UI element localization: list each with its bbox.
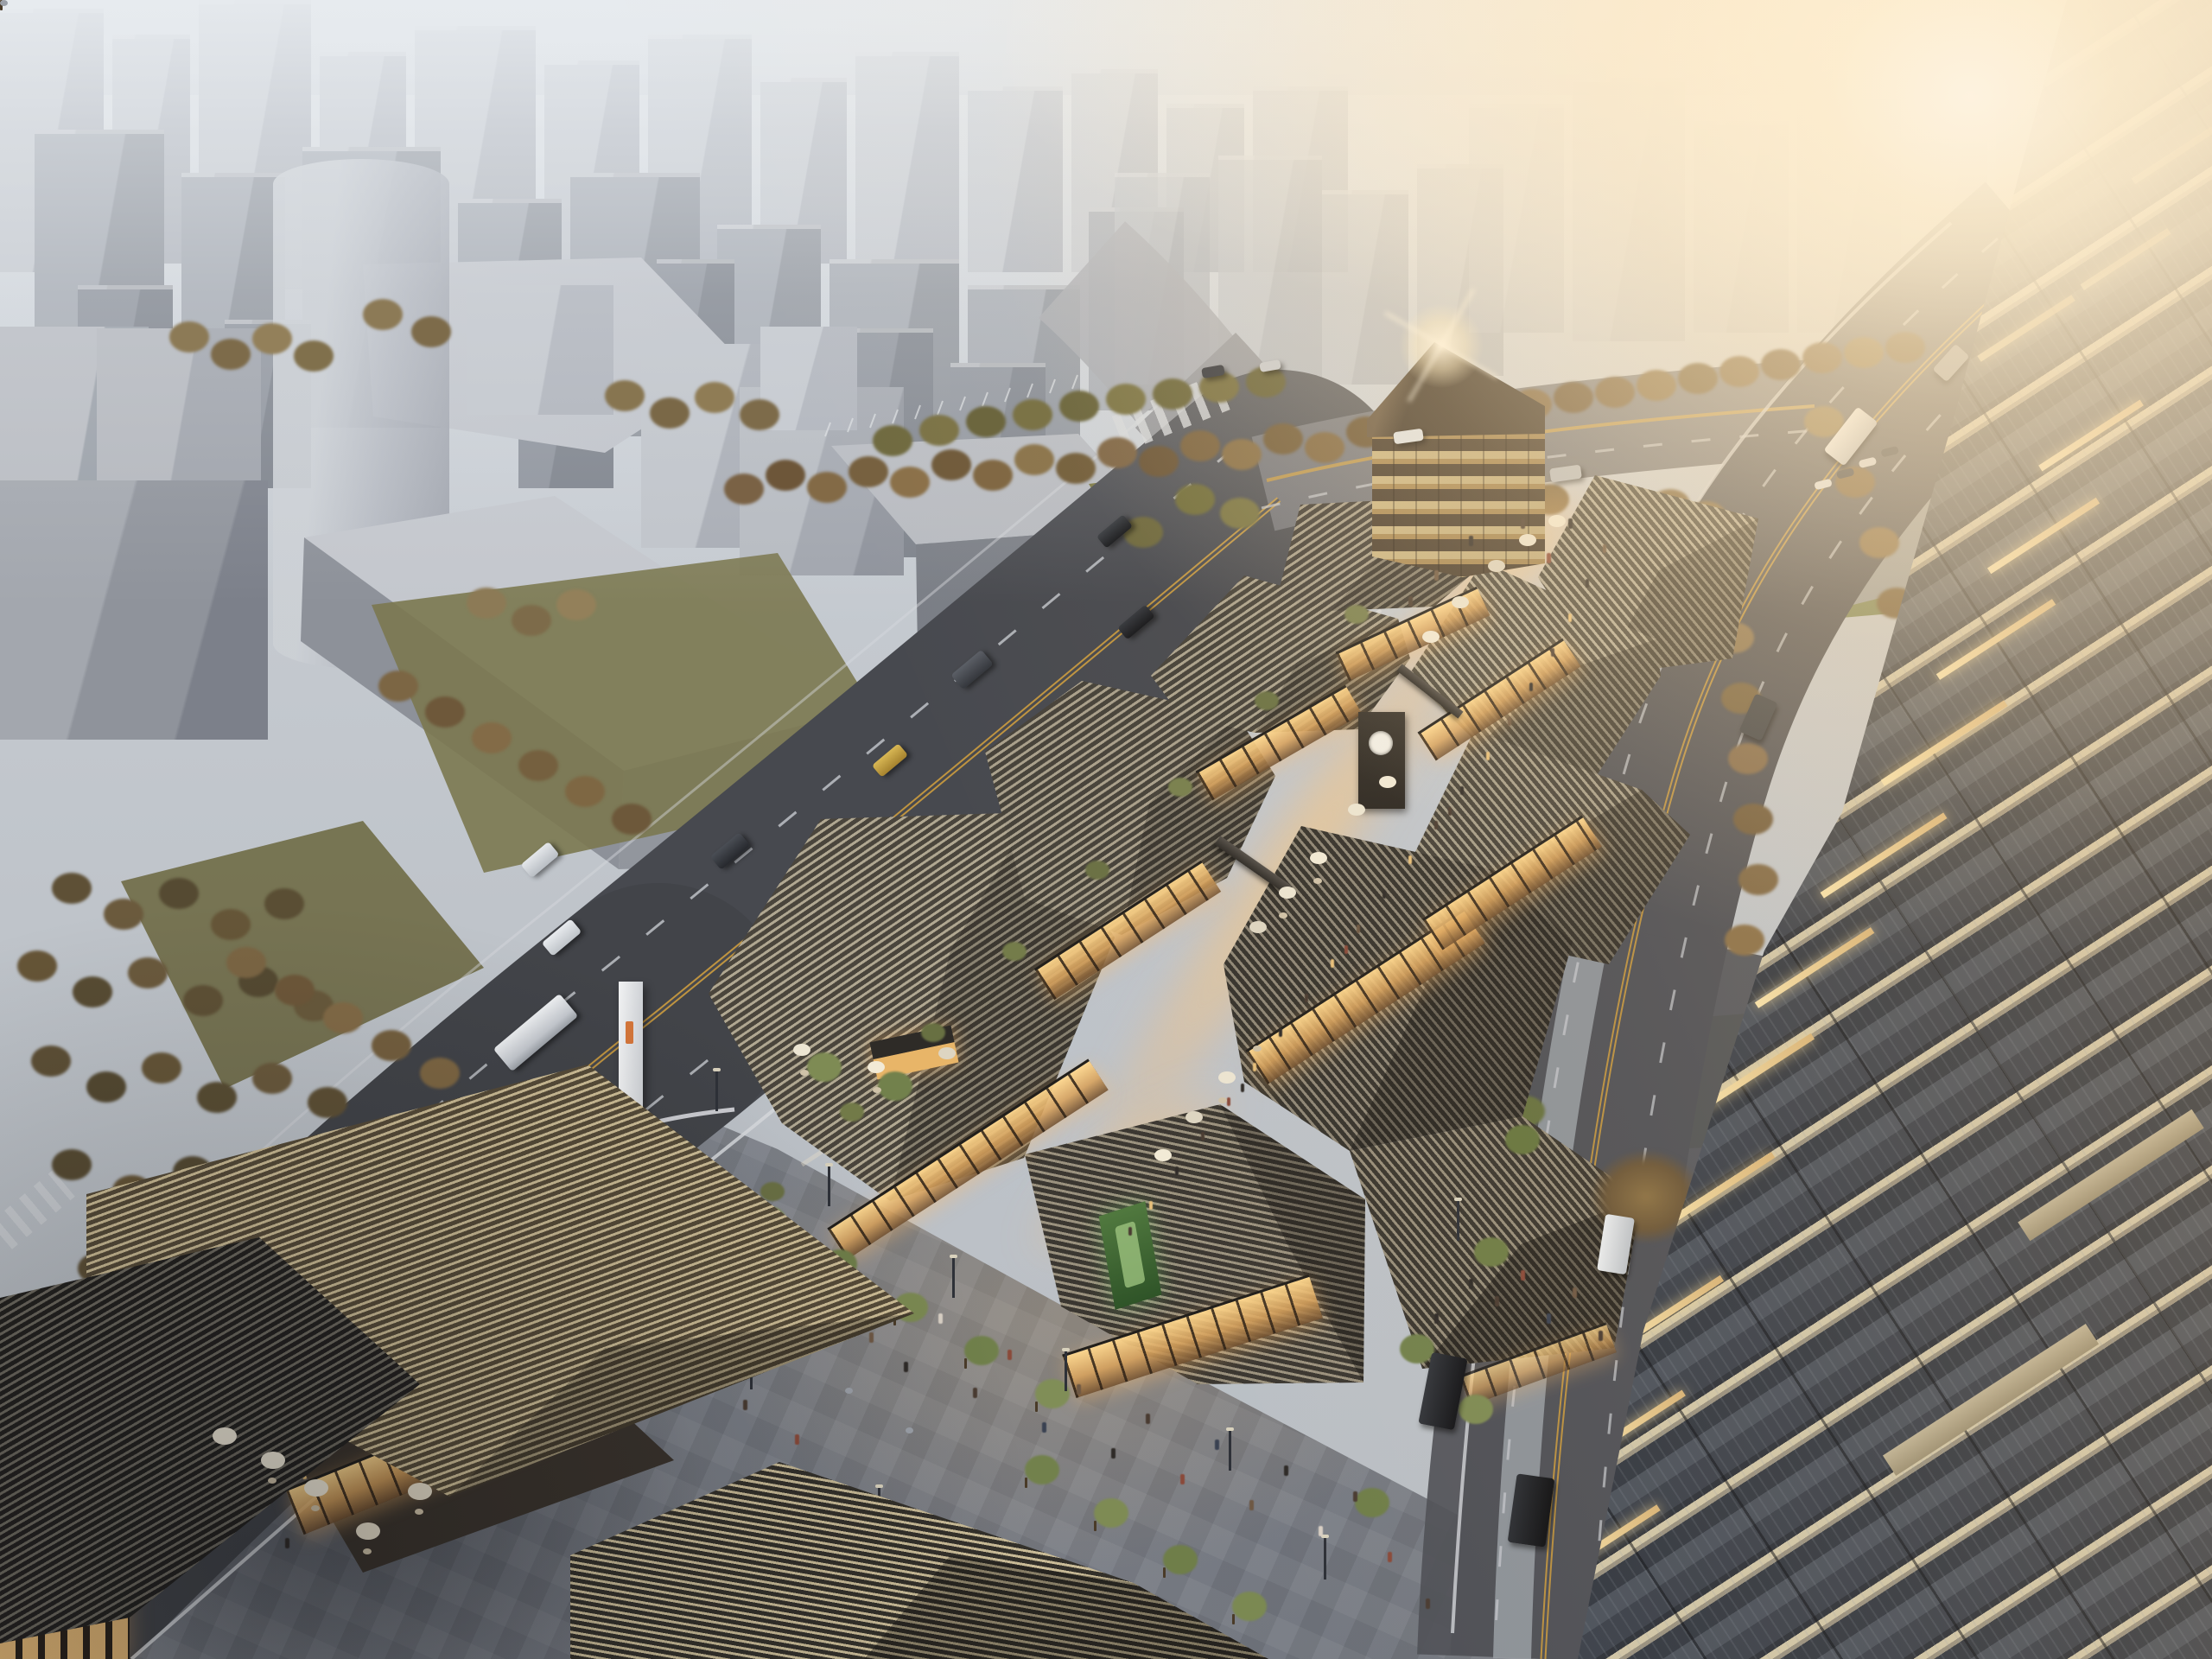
rendered-scene: Aerial architectural rendering of a mixe…: [0, 0, 2212, 1659]
vignette: [0, 0, 2212, 1659]
